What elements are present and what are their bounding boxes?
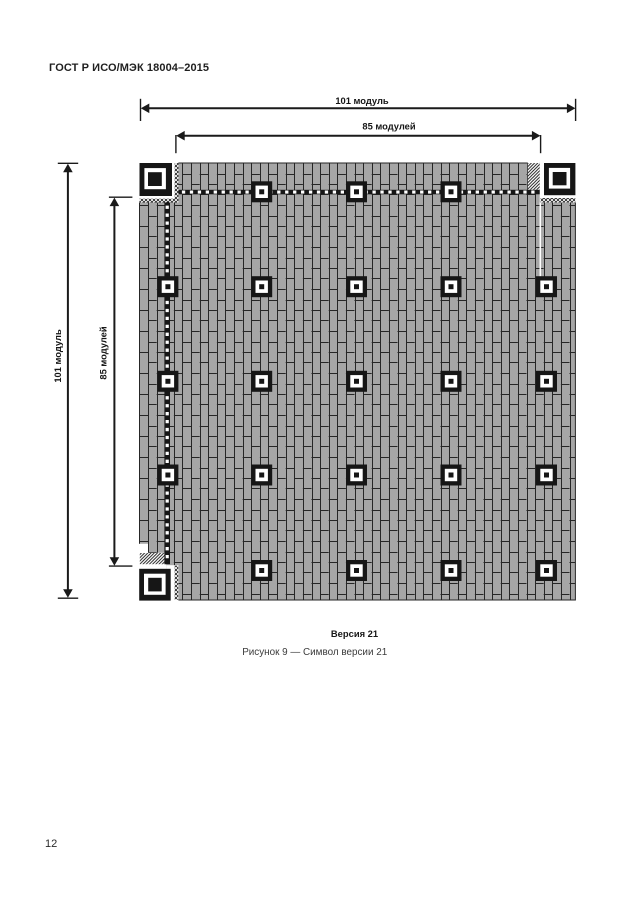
svg-text:101 модуль: 101 модуль: [53, 329, 63, 383]
svg-text:85 модулей: 85 модулей: [99, 326, 109, 379]
svg-text:Версия 21: Версия 21: [331, 628, 378, 639]
svg-text:101 модуль: 101 модуль: [335, 96, 389, 106]
svg-text:85 модулей: 85 модулей: [362, 122, 415, 132]
svg-text:Рисунок 9 — Символ версии 21: Рисунок 9 — Символ версии 21: [242, 647, 388, 658]
